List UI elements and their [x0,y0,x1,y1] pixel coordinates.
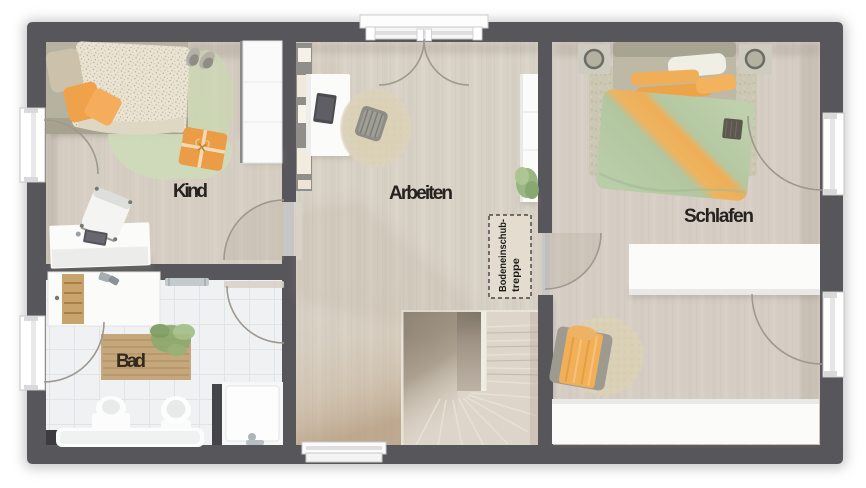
svg-text:treppe: treppe [510,258,522,292]
svg-text:Bodeneinschub-: Bodeneinschub- [497,219,509,292]
svg-text:Bad: Bad [116,351,146,372]
svg-text:Kind: Kind [173,181,208,202]
svg-text:Schlafen: Schlafen [684,206,754,227]
svg-text:Arbeiten: Arbeiten [389,183,453,204]
